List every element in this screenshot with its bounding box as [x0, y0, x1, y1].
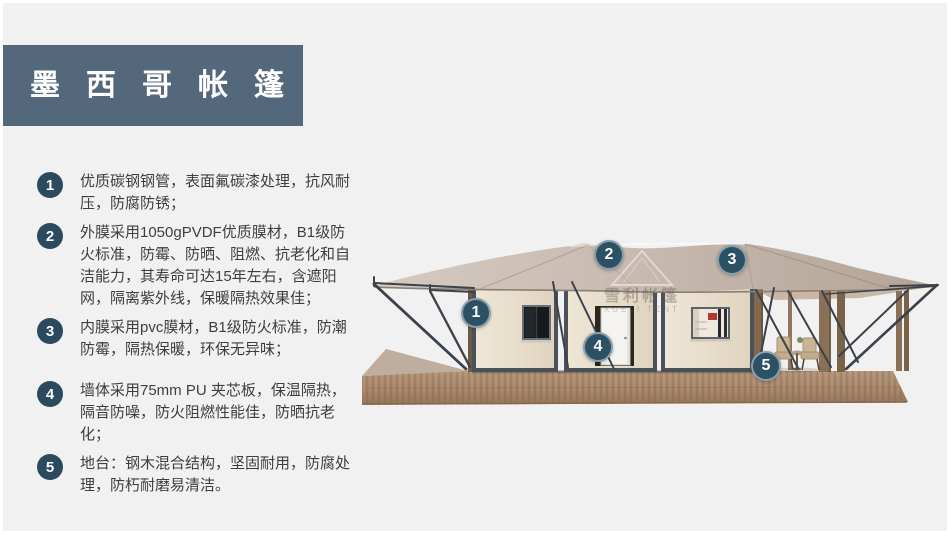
tent-photo: 雪利帐篷 XUELI TENT: [0, 0, 950, 534]
callout-4-badge: 4: [583, 332, 613, 362]
watermark-cn: 雪利帐篷: [604, 286, 680, 305]
callout-2-badge: 2: [594, 240, 624, 270]
callout-5-badge: 5: [751, 351, 781, 381]
slide: 墨西哥帐篷 1 优质碳钢钢管，表面氟碳漆处理，抗风耐压，防腐防锈； 2 外膜采用…: [0, 0, 950, 534]
callout-1-badge: 1: [461, 298, 491, 328]
callout-3-badge: 3: [717, 245, 747, 275]
window-a: [521, 305, 552, 343]
watermark-en: XUELI TENT: [604, 305, 680, 314]
deck: [362, 371, 908, 405]
window-c: [690, 307, 731, 342]
